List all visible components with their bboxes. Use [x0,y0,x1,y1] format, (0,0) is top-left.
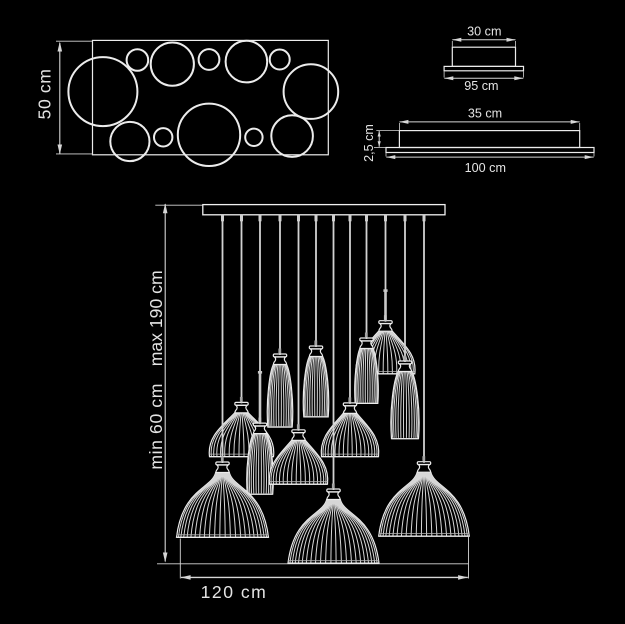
svg-text:35 cm: 35 cm [468,107,502,121]
svg-text:max 190 cm: max 190 cm [146,270,166,366]
svg-text:min 60 cm: min 60 cm [146,383,166,470]
svg-text:30 cm: 30 cm [467,25,501,39]
svg-text:95 cm: 95 cm [464,79,498,93]
svg-text:2,5 cm: 2,5 cm [362,124,376,162]
svg-text:120 cm: 120 cm [201,582,268,602]
svg-text:100 cm: 100 cm [465,161,506,175]
svg-text:50 cm: 50 cm [35,68,55,119]
